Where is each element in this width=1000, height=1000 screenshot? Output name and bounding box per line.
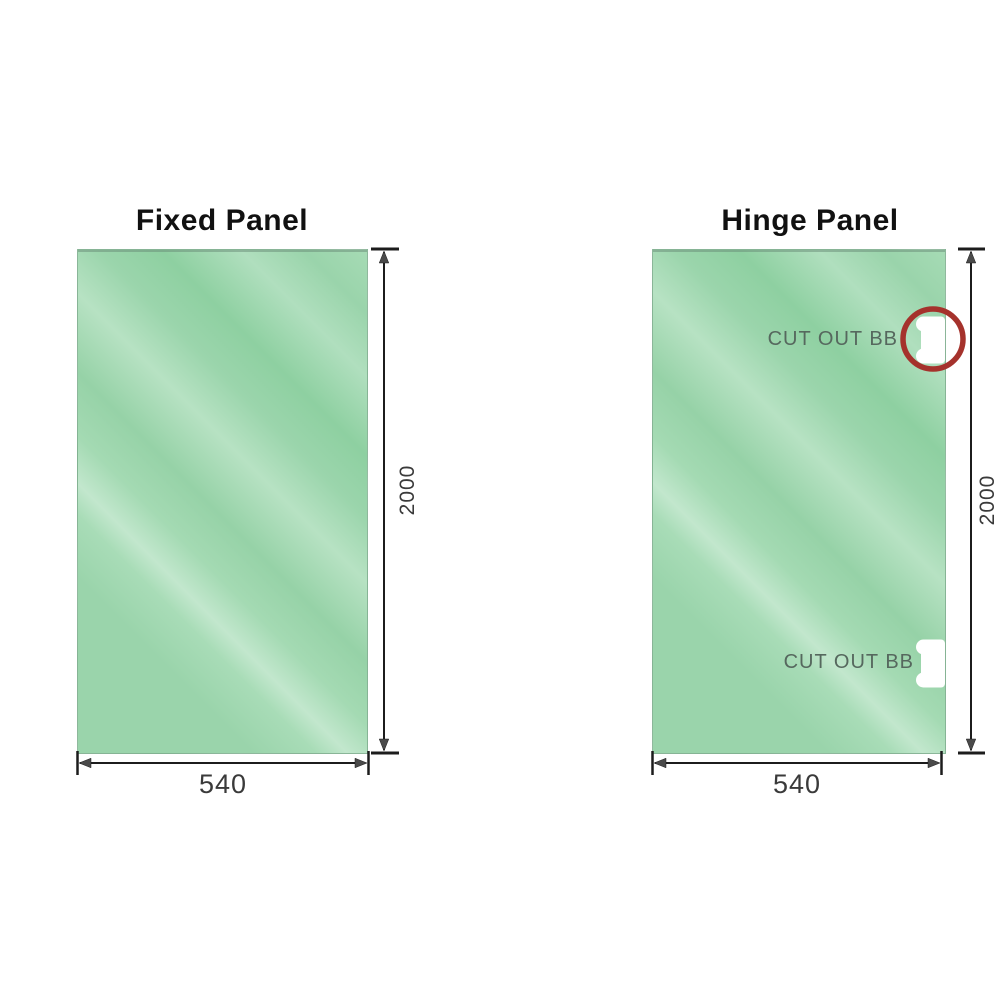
cutout-label-bottom: CUT OUT BB [714,650,914,674]
hinge-panel-height-value: 2000 [975,440,1000,560]
hinge-cutout-bottom [916,640,945,688]
hinge-panel-width-value: 540 [697,769,897,800]
arrow-down-icon [966,739,976,751]
cutout-body [921,640,945,688]
arrow-left-icon [654,758,666,768]
arrow-left-icon [79,758,91,768]
fixed-panel-width-value: 540 [123,769,323,800]
arrow-down-icon [379,739,389,751]
fixed-panel-height-value: 2000 [395,430,421,550]
shower-panel-diagram: Fixed Panel Hinge Panel [0,0,1000,1000]
arrow-up-icon [379,251,389,263]
dimension-annotation-overlay [0,0,1000,1000]
cutout-label-top: CUT OUT BB [698,327,898,351]
cutout-body [921,317,945,364]
hinge-cutout-top [916,317,945,364]
arrow-up-icon [966,251,976,263]
arrow-right-icon [355,758,367,768]
arrow-right-icon [928,758,940,768]
